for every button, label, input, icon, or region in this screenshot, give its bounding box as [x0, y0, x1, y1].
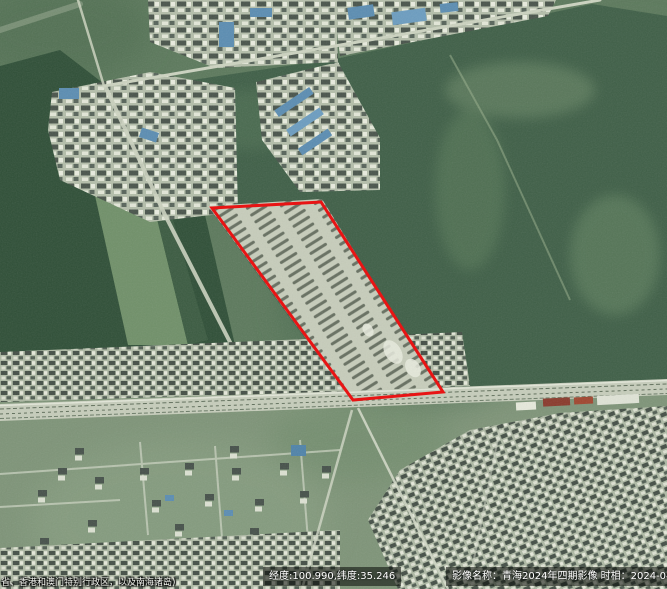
imagery-info-readout: 影像名称：青海2024年四期影像 时相：2024-04-11 — [446, 567, 667, 586]
imagery-grain — [0, 0, 667, 589]
coordinate-readout: 经度:100.990,纬度:35.246 — [263, 567, 401, 586]
map-disclaimer: 省、香港和澳门特别行政区，以及南海诸岛) — [1, 575, 176, 588]
map-viewport[interactable]: 经度:100.990,纬度:35.246 影像名称：青海2024年四期影像 时相… — [0, 0, 667, 589]
satellite-basemap — [0, 0, 667, 589]
